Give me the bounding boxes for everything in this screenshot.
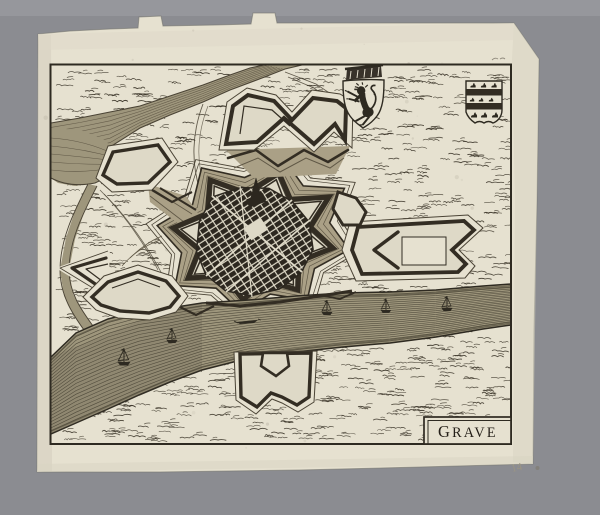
svg-text:GRAVE: GRAVE (438, 422, 498, 441)
